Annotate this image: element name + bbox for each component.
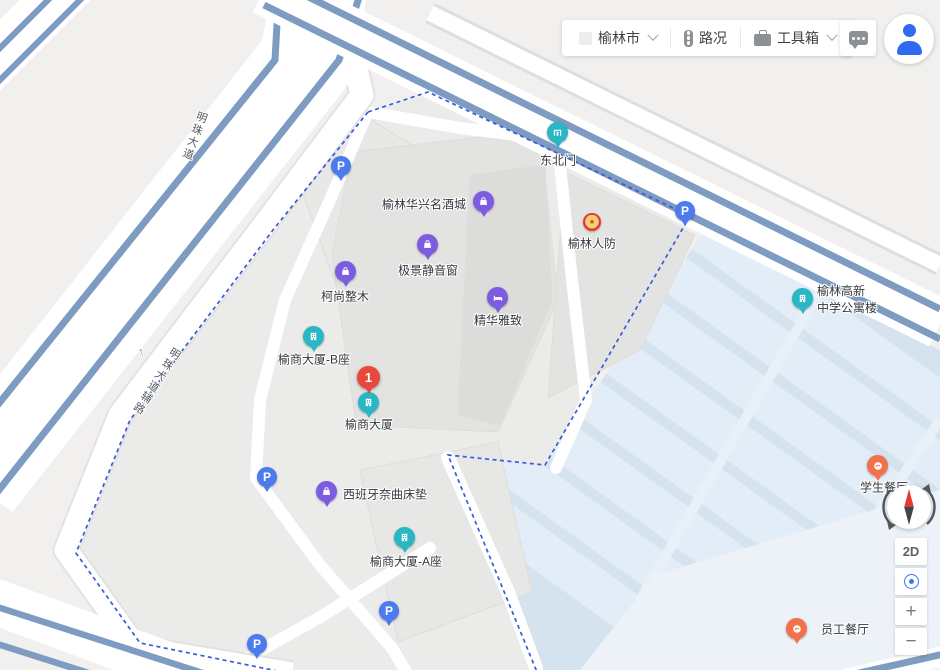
restaurant-icon bbox=[791, 623, 803, 635]
bed-icon bbox=[492, 292, 504, 304]
locate-me-button[interactable] bbox=[895, 568, 927, 595]
poi-pin-yuangong[interactable] bbox=[786, 618, 807, 639]
parking-pin[interactable]: P bbox=[247, 634, 267, 654]
traffic-toggle[interactable]: 路况 bbox=[680, 28, 731, 48]
poi-label-dongbeimen: 东北门 bbox=[540, 152, 576, 169]
zoom-out-button[interactable]: − bbox=[895, 628, 927, 655]
search-result-marker-1[interactable]: 1 bbox=[357, 366, 380, 389]
poi-pin-dongbeimen[interactable] bbox=[547, 122, 568, 143]
parking-pin[interactable]: P bbox=[331, 156, 351, 176]
shopping-bag-icon bbox=[422, 239, 433, 250]
toolbar-divider bbox=[740, 28, 741, 48]
map-toolbar: 榆林市 路况 工具箱 bbox=[562, 20, 853, 56]
poi-pin-bzuo[interactable] bbox=[303, 326, 324, 347]
poi-pin-jinghua[interactable] bbox=[487, 287, 508, 308]
locate-target-icon bbox=[904, 574, 919, 589]
building-icon bbox=[308, 331, 319, 342]
parking-icon: P bbox=[263, 471, 271, 483]
poi-label-gongyu: 榆林高新 中学公寓楼 bbox=[817, 283, 877, 317]
parking-pin[interactable]: P bbox=[257, 467, 277, 487]
building-icon bbox=[399, 532, 410, 543]
map-application: 明珠大道 明珠大道辅路 ↑ 东北门 P 榆林华兴名酒城 ★ 榆林人防 极景静音窗… bbox=[0, 0, 940, 670]
shopping-bag-icon bbox=[340, 266, 351, 277]
parking-icon: P bbox=[681, 205, 689, 217]
toolbox-menu-label: 工具箱 bbox=[777, 28, 819, 48]
poi-pin-azuo[interactable] bbox=[394, 527, 415, 548]
poi-pin-jijing[interactable] bbox=[417, 234, 438, 255]
city-selector[interactable]: 榆林市 bbox=[575, 28, 661, 48]
toolbox-icon bbox=[754, 34, 771, 46]
compass-needle-icon bbox=[877, 479, 940, 535]
parking-icon: P bbox=[385, 605, 393, 617]
map-2d-mode-button[interactable]: 2D bbox=[895, 538, 927, 565]
chat-bubble-icon bbox=[849, 31, 868, 45]
shopping-bag-icon bbox=[478, 196, 489, 207]
parking-pin[interactable]: P bbox=[675, 201, 695, 221]
parking-icon: P bbox=[253, 638, 261, 650]
poi-label-xibanya: 西班牙奈曲床垫 bbox=[343, 486, 427, 503]
chevron-down-icon bbox=[826, 30, 837, 41]
user-avatar-button[interactable] bbox=[884, 14, 934, 64]
city-icon bbox=[579, 32, 592, 45]
poi-label-huaxing: 榆林华兴名酒城 bbox=[382, 196, 466, 213]
chevron-down-icon bbox=[647, 30, 658, 41]
traffic-toggle-label: 路况 bbox=[699, 28, 727, 48]
poi-pin-gongyu[interactable] bbox=[792, 288, 813, 309]
poi-label-renfang: 榆林人防 bbox=[568, 235, 616, 252]
poi-label-gongyu-line2: 中学公寓楼 bbox=[817, 300, 877, 317]
building-icon bbox=[797, 293, 808, 304]
toolbar-divider bbox=[670, 28, 671, 48]
feedback-button[interactable] bbox=[840, 20, 876, 56]
poi-label-gongyu-line1: 榆林高新 bbox=[817, 283, 877, 300]
toolbox-menu[interactable]: 工具箱 bbox=[750, 28, 840, 48]
parking-pin[interactable]: P bbox=[379, 601, 399, 621]
poi-pin-xuesheng[interactable] bbox=[867, 455, 888, 476]
poi-pin-huaxing[interactable] bbox=[473, 191, 494, 212]
poi-pin-keshang[interactable] bbox=[335, 261, 356, 282]
restaurant-icon bbox=[872, 460, 884, 472]
poi-pin-renfang[interactable]: ★ bbox=[583, 213, 601, 231]
shopping-bag-icon bbox=[321, 486, 332, 497]
traffic-light-icon bbox=[684, 30, 693, 47]
parking-icon: P bbox=[337, 160, 345, 172]
compass-control[interactable] bbox=[877, 479, 940, 535]
emblem-star-icon: ★ bbox=[589, 219, 595, 226]
zoom-in-button[interactable]: + bbox=[895, 598, 927, 625]
poi-pin-xibanya[interactable] bbox=[316, 481, 337, 502]
city-selector-label: 榆林市 bbox=[598, 28, 640, 48]
poi-label-yuangong: 员工餐厅 bbox=[821, 621, 869, 638]
user-person-icon bbox=[884, 14, 934, 64]
gate-icon bbox=[552, 127, 563, 138]
map-canvas[interactable] bbox=[0, 0, 940, 670]
